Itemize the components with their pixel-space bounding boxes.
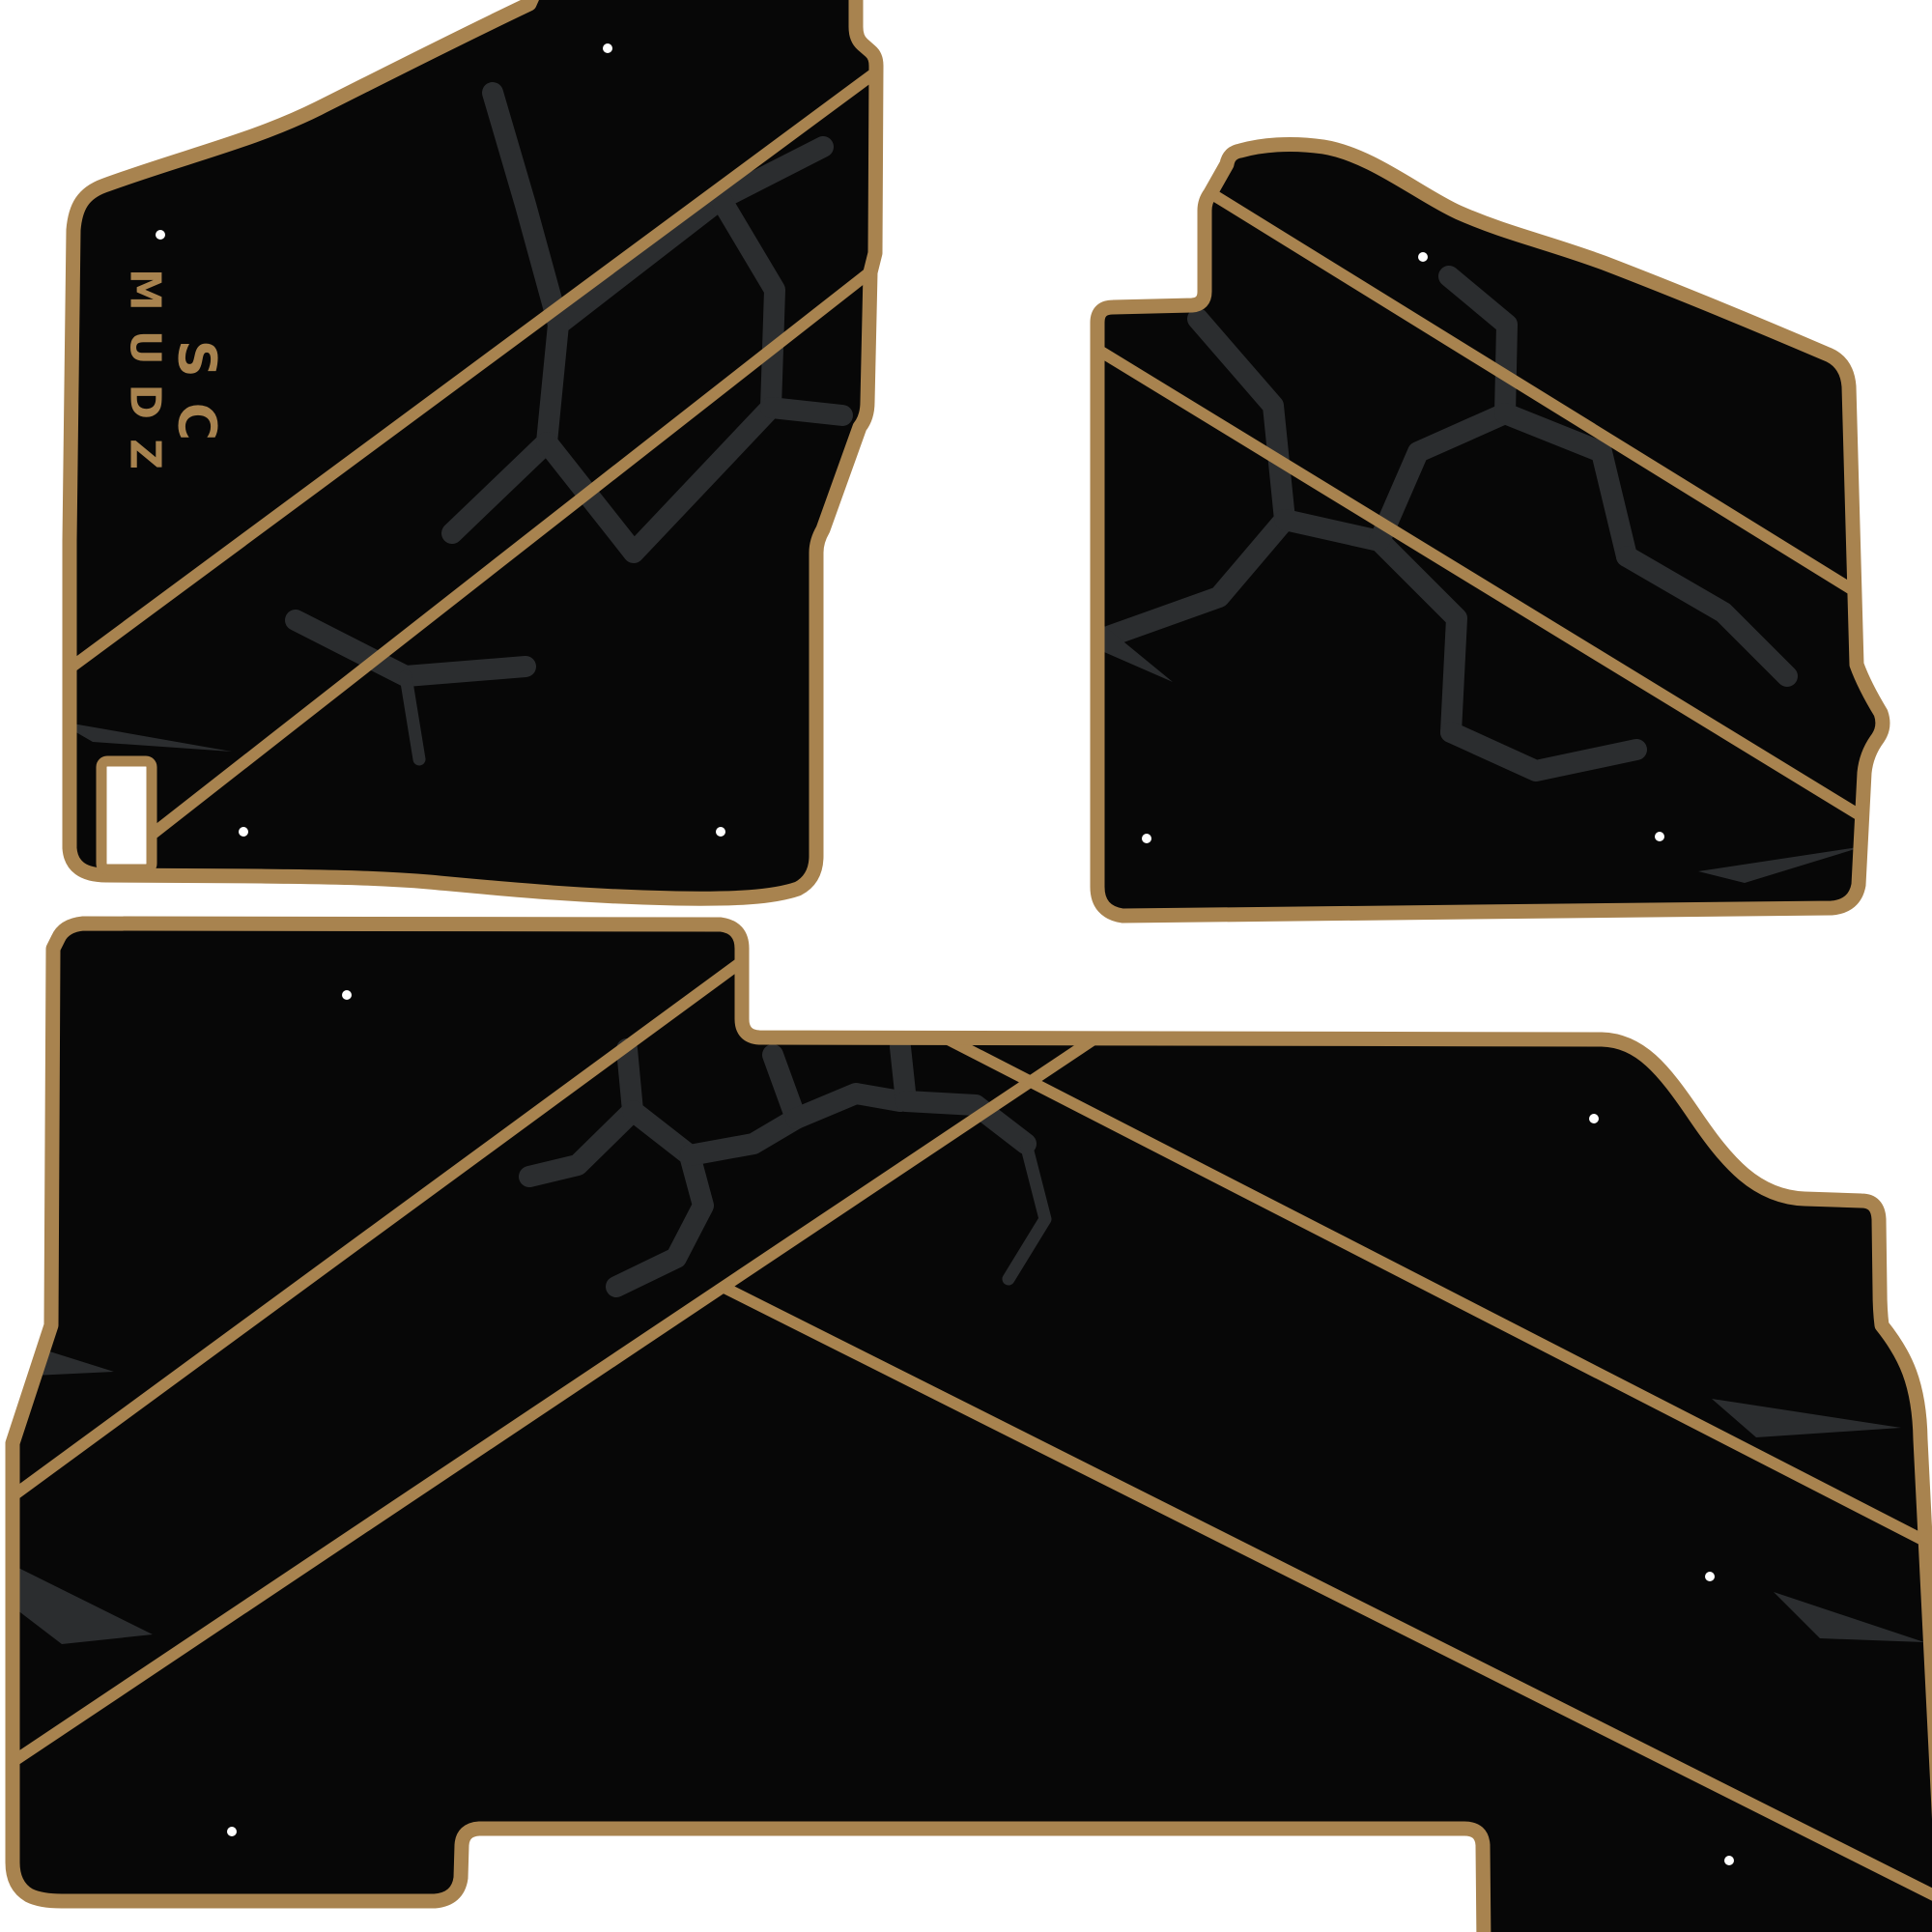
fastener-hole: [716, 827, 725, 837]
crack-line: [771, 408, 842, 415]
fastener-hole: [603, 43, 612, 53]
mat-rear-base: [13, 923, 1932, 1932]
fastener-hole: [1705, 1572, 1715, 1581]
fastener-hole: [239, 827, 248, 837]
fastener-hole: [1418, 252, 1428, 262]
product-image-stage: SC MUDZ: [0, 0, 1932, 1932]
fastener-hole: [342, 990, 352, 1000]
floor-mat-set-image: SC MUDZ: [0, 0, 1932, 1932]
fastener-hole: [1655, 832, 1664, 841]
mat-cutout-window: [101, 761, 152, 869]
fastener-hole: [1724, 1856, 1734, 1865]
mat-rear: [0, 923, 1932, 1932]
mat-front-left: SC MUDZ: [17, 0, 904, 908]
fastener-hole: [1142, 834, 1151, 843]
fastener-hole: [156, 230, 165, 240]
fastener-hole: [1589, 1114, 1599, 1123]
fastener-hole: [227, 1827, 237, 1836]
logo-line2: MUDZ: [121, 269, 170, 489]
mat-front-right: [1082, 144, 1891, 916]
logo-line1: SC: [167, 340, 228, 467]
